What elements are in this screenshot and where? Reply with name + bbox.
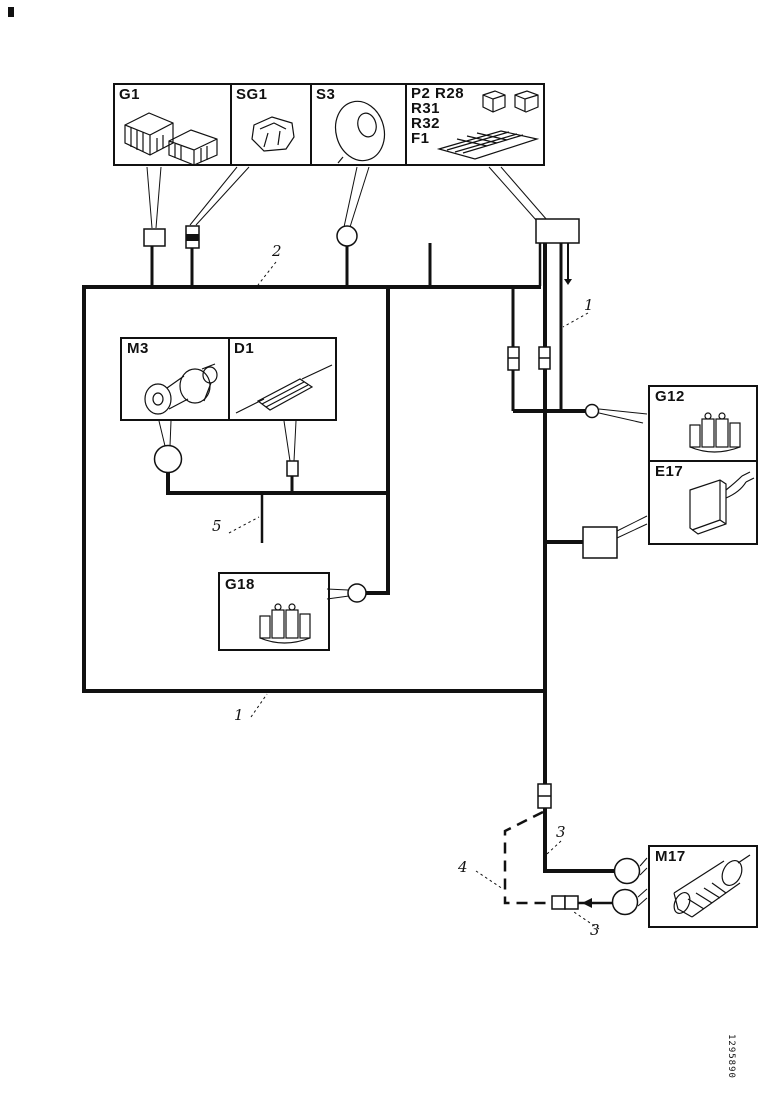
component-label-m3: M3 <box>127 341 149 356</box>
component-leader-lines <box>147 167 647 906</box>
relays-fuse-panel-icon <box>409 87 543 165</box>
connector-symbols <box>144 219 640 915</box>
component-box-s3: S3 <box>310 83 407 166</box>
multi-pin-block-symbol <box>536 219 579 243</box>
component-box-sg1: SG1 <box>230 83 312 166</box>
component-label-g12: G12 <box>655 389 685 404</box>
inline-connector-symbol <box>287 461 298 476</box>
pump-motor-icon <box>654 851 756 927</box>
component-box-g12: G12 <box>648 385 758 462</box>
wire-inner-harness <box>168 287 388 593</box>
wire-callout-3-upper: 3 <box>556 825 566 840</box>
motor-icon <box>140 359 224 417</box>
component-box-m3-d1: M3 D1 <box>120 337 337 421</box>
component-label-sg1: SG1 <box>236 87 268 102</box>
battery-units-icon <box>117 103 232 165</box>
relay-module-icon <box>234 107 310 162</box>
wire-callout-5: 5 <box>212 519 222 534</box>
component-label-d1: D1 <box>234 341 254 356</box>
wire-callout-4: 4 <box>458 860 468 875</box>
ring-connector-symbol <box>586 405 599 418</box>
diode-icon <box>234 357 336 419</box>
connector-block-icon <box>252 600 324 650</box>
wire-callout-2: 2 <box>272 244 282 259</box>
ring-connector-symbol <box>155 446 182 473</box>
ring-connector-symbol <box>613 890 638 915</box>
component-label-g18: G18 <box>225 577 255 592</box>
square-connector-symbol <box>144 229 165 246</box>
wire-callout-3-lower: 3 <box>590 923 600 938</box>
junction-box-symbol <box>583 527 617 558</box>
component-label-g1: G1 <box>119 87 140 102</box>
component-box-m17: M17 <box>648 845 758 928</box>
horn-icon <box>314 95 406 167</box>
flasher-unit-icon <box>676 468 758 542</box>
component-box-g18: G18 <box>218 572 330 651</box>
ring-connector-symbol <box>615 859 640 884</box>
component-box-relay-fuse: P2 R28 R31 R32 F1 <box>405 83 545 166</box>
wiring-harness-diagram-page: G1 SG1 S3 P2 R28 R31 R32 F1 <box>0 0 762 1100</box>
box-divider <box>228 339 230 419</box>
component-box-g1: G1 <box>113 83 232 166</box>
drawing-number: 1295890 <box>726 1034 736 1098</box>
wire-arrowhead-down <box>564 279 572 285</box>
wire-top-stubs <box>152 243 430 287</box>
inline-connector-symbol <box>552 896 565 909</box>
connector-block-icon <box>682 409 754 459</box>
wire-callout-1-bottom: 1 <box>234 708 244 723</box>
wire-callout-1-right: 1 <box>584 298 594 313</box>
component-box-e17: E17 <box>648 460 758 545</box>
inline-connector-symbol <box>565 896 578 909</box>
ring-connector-symbol <box>348 584 366 602</box>
ring-connector-symbol <box>337 226 357 246</box>
wire-arrowhead-left <box>582 898 592 908</box>
